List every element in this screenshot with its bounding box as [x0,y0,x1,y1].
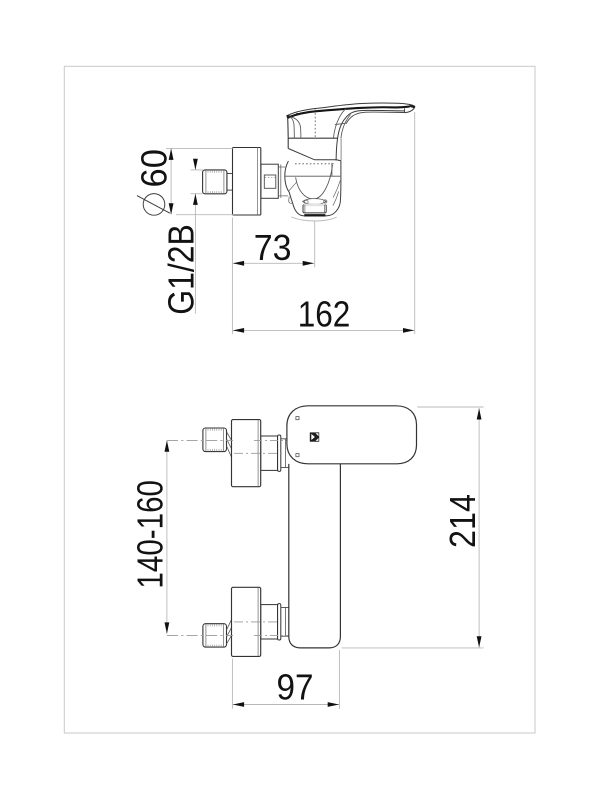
svg-text:60: 60 [134,149,175,187]
svg-text:G1/2B: G1/2B [160,224,201,315]
svg-text:140-160: 140-160 [130,480,171,589]
svg-text:162: 162 [298,294,351,335]
svg-text:214: 214 [442,494,483,548]
svg-text:97: 97 [277,667,314,708]
svg-text:73: 73 [254,227,292,268]
